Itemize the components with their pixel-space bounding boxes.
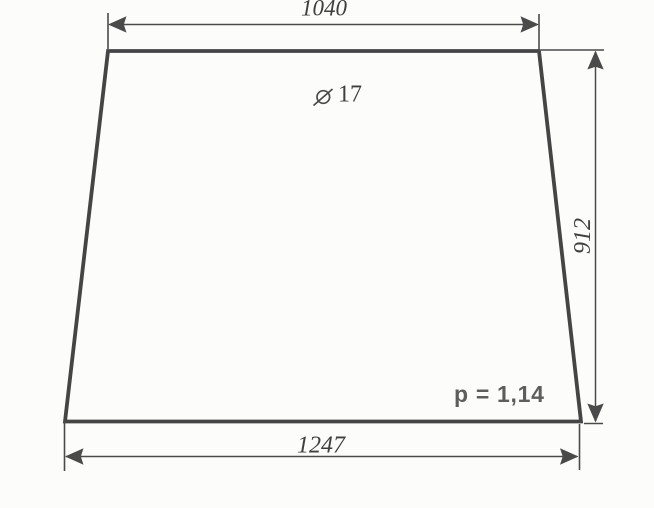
svg-text:17: 17 [338,82,362,108]
svg-text:1247: 1247 [297,433,346,459]
svg-text:p = 1,14: p = 1,14 [454,381,545,407]
svg-text:1040: 1040 [301,0,348,21]
svg-text:912: 912 [570,218,596,254]
